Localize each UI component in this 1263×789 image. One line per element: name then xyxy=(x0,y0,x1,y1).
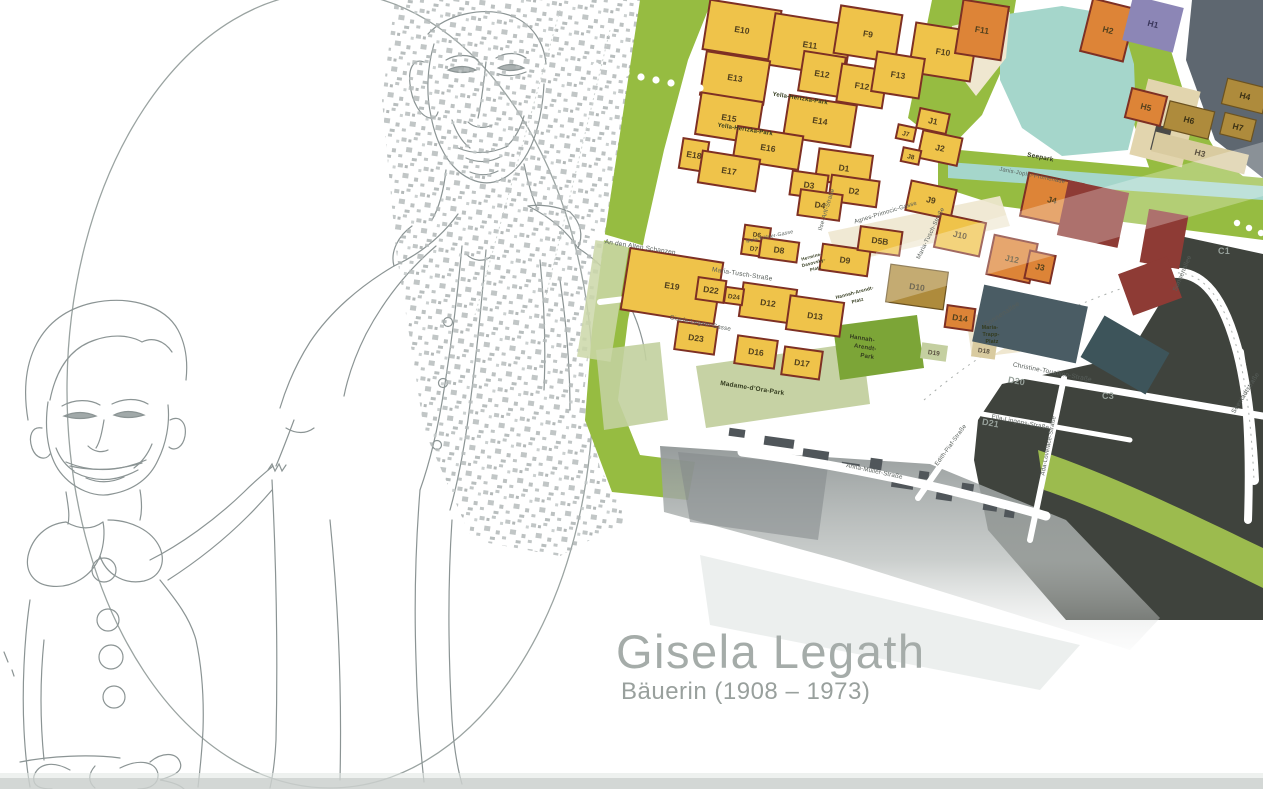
map-block-d4: D4 xyxy=(797,189,842,221)
page-subtitle: Bäuerin (1908 – 1973) xyxy=(621,678,870,706)
map-block-j7: J7 xyxy=(896,124,917,141)
park-label: Maria- xyxy=(982,325,999,331)
map-block-label: D7 xyxy=(749,245,759,253)
park-label: Trapp- xyxy=(982,332,999,338)
map-block-label: D2 xyxy=(848,185,860,196)
area-label: C1 xyxy=(1218,246,1230,256)
scan-page: E10E11F9F10F11H2H1E13E12F12F13E15E14E16E… xyxy=(0,0,1263,789)
map-block-label: D9 xyxy=(839,254,851,265)
map-block-f11: F11 xyxy=(955,0,1009,60)
girl-drawing xyxy=(4,300,286,789)
park-label: Platz xyxy=(851,296,865,305)
map-block-d19: D19 xyxy=(920,342,948,361)
street-label: Edith-Piaf-Straße xyxy=(934,423,968,467)
map-block-label: F9 xyxy=(862,28,874,39)
map-block-d17: D17 xyxy=(781,346,823,379)
hannah-arendt-park xyxy=(833,315,924,380)
map-block-label: D8 xyxy=(773,244,785,255)
page-title: Gisela Legath xyxy=(616,624,926,679)
map-block-d13: D13 xyxy=(786,295,844,336)
map-block-d8: D8 xyxy=(759,237,799,262)
map-block-j8: J8 xyxy=(901,147,922,164)
map-block-d24: D24 xyxy=(724,287,744,305)
area-label: C3 xyxy=(1102,391,1114,401)
map-block-f13: F13 xyxy=(871,51,925,98)
map-block-d16: D16 xyxy=(734,335,778,368)
map-block-label: D1 xyxy=(838,162,850,173)
scan-edge-strip xyxy=(0,778,1263,789)
park-label: Hannah-Arendt- xyxy=(835,285,874,301)
park-label: Platz xyxy=(985,339,998,345)
map-block-d22: D22 xyxy=(696,277,727,303)
map-block-d14: D14 xyxy=(945,305,976,331)
